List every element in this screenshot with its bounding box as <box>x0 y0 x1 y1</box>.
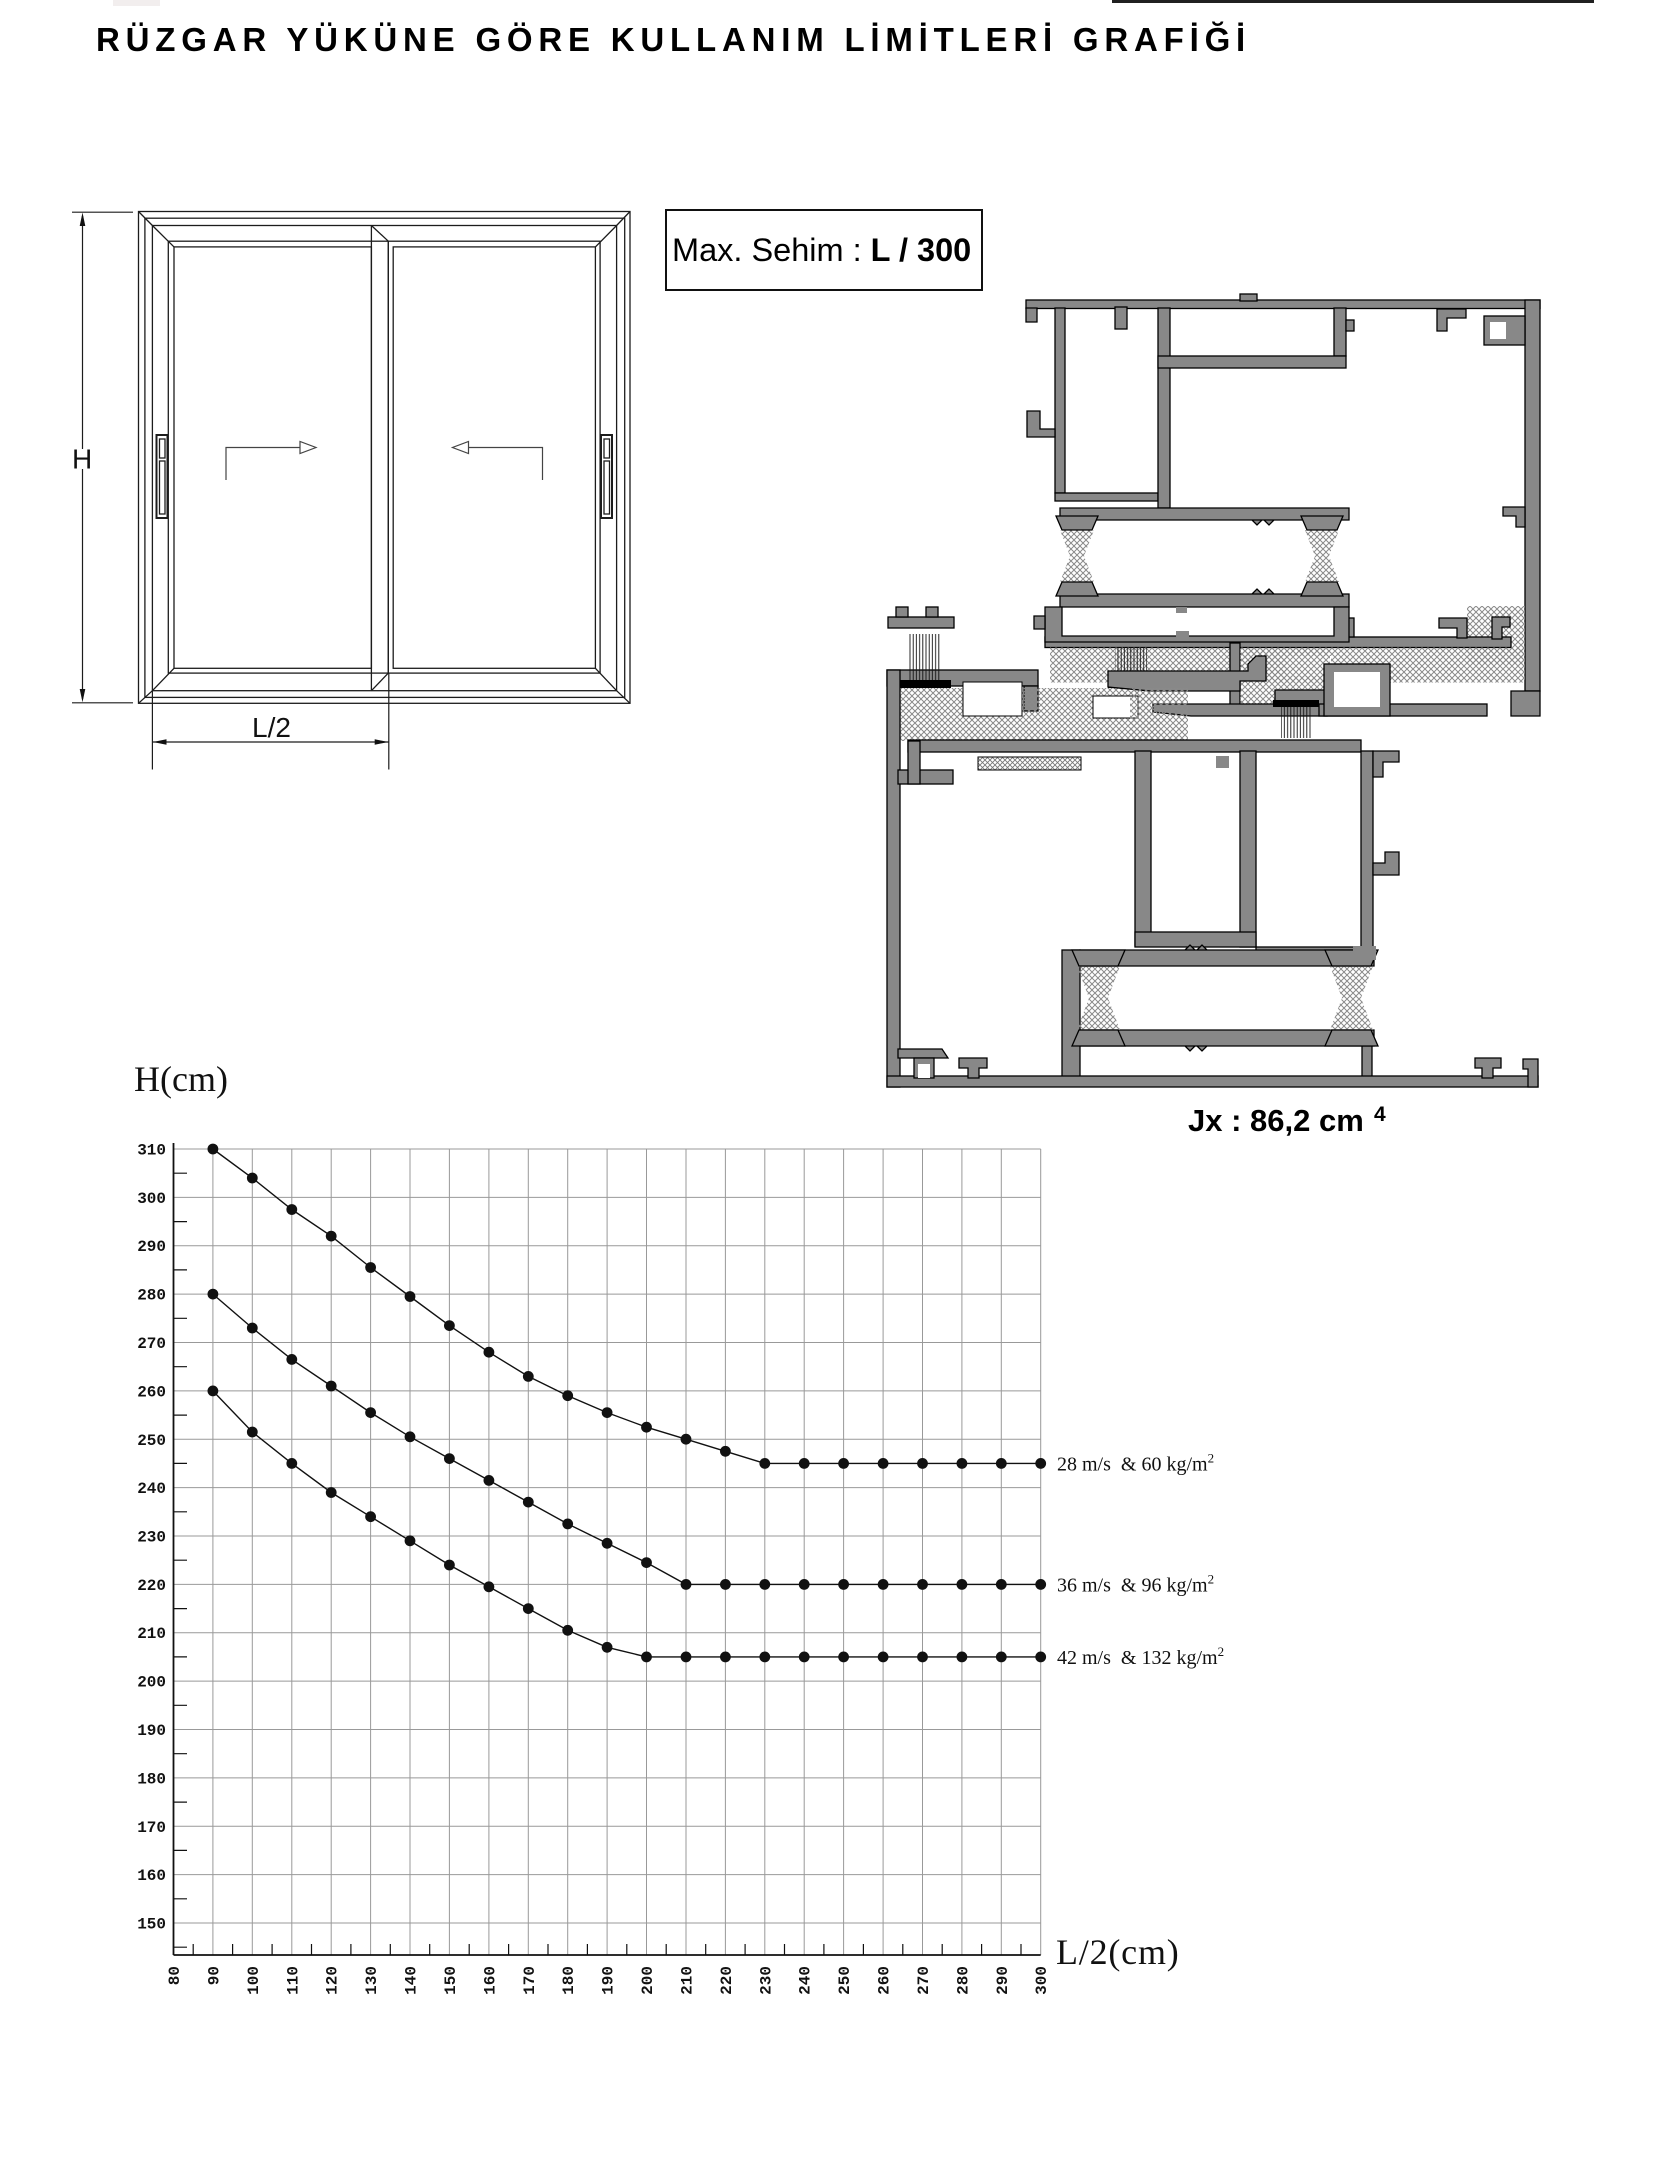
svg-text:240: 240 <box>797 1966 815 1995</box>
svg-text:220: 220 <box>718 1966 736 1995</box>
svg-text:42 m/s & 132 kg/m2: 42 m/s & 132 kg/m2 <box>1057 1644 1224 1669</box>
svg-text:250: 250 <box>836 1966 854 1995</box>
svg-text:120: 120 <box>324 1966 342 1995</box>
svg-text:90: 90 <box>205 1966 223 1985</box>
svg-text:190: 190 <box>137 1722 166 1740</box>
svg-text:150: 150 <box>137 1916 166 1934</box>
svg-text:180: 180 <box>137 1770 166 1788</box>
svg-text:L/2(cm): L/2(cm) <box>1056 1932 1180 1972</box>
svg-text:L/2: L/2 <box>252 712 291 743</box>
svg-text:290: 290 <box>137 1238 166 1256</box>
svg-text:80: 80 <box>166 1966 184 1985</box>
svg-text:100: 100 <box>245 1966 263 1995</box>
svg-text:Jx : 86,2 cm: Jx : 86,2 cm <box>1188 1103 1364 1138</box>
svg-text:170: 170 <box>137 1819 166 1837</box>
svg-text:110: 110 <box>284 1966 302 1995</box>
svg-text:36 m/s & 96 kg/m2: 36 m/s & 96 kg/m2 <box>1057 1571 1214 1596</box>
svg-text:H(cm): H(cm) <box>134 1059 228 1099</box>
svg-text:28 m/s & 60 kg/m2: 28 m/s & 60 kg/m2 <box>1057 1450 1214 1475</box>
svg-text:240: 240 <box>137 1480 166 1498</box>
svg-text:Max. Sehim : L / 300: Max. Sehim : L / 300 <box>672 232 971 268</box>
svg-text:210: 210 <box>137 1625 166 1643</box>
svg-text:230: 230 <box>137 1529 166 1547</box>
svg-text:160: 160 <box>481 1966 499 1995</box>
svg-text:180: 180 <box>560 1966 578 1995</box>
svg-text:H: H <box>72 444 92 475</box>
svg-text:160: 160 <box>137 1867 166 1885</box>
svg-text:200: 200 <box>639 1966 657 1995</box>
svg-text:130: 130 <box>363 1966 381 1995</box>
svg-text:4: 4 <box>1374 1103 1386 1126</box>
svg-text:290: 290 <box>994 1966 1012 1995</box>
svg-text:300: 300 <box>137 1190 166 1208</box>
svg-text:300: 300 <box>1033 1966 1051 1995</box>
svg-text:230: 230 <box>757 1966 775 1995</box>
svg-text:260: 260 <box>876 1966 894 1995</box>
svg-text:270: 270 <box>915 1966 933 1995</box>
svg-text:310: 310 <box>137 1142 166 1160</box>
svg-text:150: 150 <box>442 1966 460 1995</box>
svg-text:190: 190 <box>600 1966 618 1995</box>
svg-text:270: 270 <box>137 1335 166 1353</box>
svg-text:280: 280 <box>954 1966 972 1995</box>
svg-text:220: 220 <box>137 1577 166 1595</box>
svg-text:210: 210 <box>679 1966 697 1995</box>
svg-text:170: 170 <box>521 1966 539 1995</box>
svg-text:250: 250 <box>137 1432 166 1450</box>
svg-text:140: 140 <box>403 1966 421 1995</box>
svg-text:200: 200 <box>137 1674 166 1692</box>
svg-text:260: 260 <box>137 1383 166 1401</box>
svg-text:280: 280 <box>137 1287 166 1305</box>
